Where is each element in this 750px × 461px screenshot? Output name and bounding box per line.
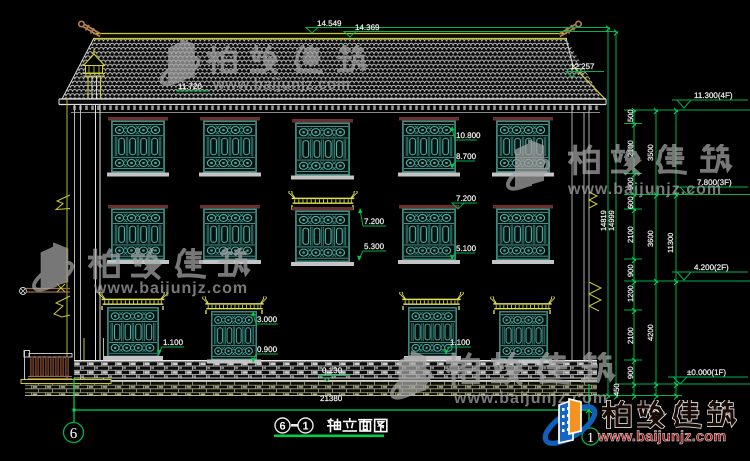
svg-text:0.900: 0.900 <box>257 345 278 354</box>
svg-text:3.000: 3.000 <box>257 315 278 324</box>
svg-text:4200: 4200 <box>646 324 655 341</box>
svg-text:600: 600 <box>626 196 635 209</box>
svg-text:1: 1 <box>587 431 594 446</box>
svg-text:450: 450 <box>612 383 621 396</box>
svg-text:4.200(2F): 4.200(2F) <box>694 263 729 272</box>
svg-text:±0.000(1F): ±0.000(1F) <box>687 368 726 377</box>
svg-text:www.baijunjz.com: www.baijunjz.com <box>212 76 350 93</box>
svg-text:1: 1 <box>302 421 308 433</box>
svg-text:11300: 11300 <box>666 233 675 253</box>
svg-text:7.200: 7.200 <box>364 217 385 226</box>
svg-text:8.700: 8.700 <box>456 152 477 161</box>
svg-text:6: 6 <box>70 426 78 442</box>
svg-text:12.257: 12.257 <box>570 62 595 71</box>
svg-text:www.baijunjz.com: www.baijunjz.com <box>567 181 722 198</box>
svg-text:900: 900 <box>626 366 635 379</box>
svg-text:14999: 14999 <box>607 210 616 231</box>
svg-text:6: 6 <box>279 421 285 433</box>
svg-text:3500: 3500 <box>646 144 655 161</box>
svg-text:www.baijunjz.com: www.baijunjz.com <box>93 280 248 297</box>
svg-text:11.720: 11.720 <box>178 82 202 91</box>
svg-text:5.300: 5.300 <box>364 242 385 251</box>
svg-text:1.100: 1.100 <box>450 338 471 347</box>
svg-text:11.300(4F): 11.300(4F) <box>694 91 733 100</box>
svg-text:500: 500 <box>626 109 635 122</box>
svg-text:5.100: 5.100 <box>456 244 477 253</box>
svg-text:www.baijunjz.com: www.baijunjz.com <box>597 429 726 445</box>
svg-text:10.800: 10.800 <box>456 131 481 140</box>
svg-text:7.200: 7.200 <box>456 194 477 203</box>
svg-text:3600: 3600 <box>646 230 655 247</box>
svg-text:21380: 21380 <box>320 394 343 403</box>
svg-text:14.369: 14.369 <box>355 23 380 32</box>
svg-text:900: 900 <box>626 264 635 277</box>
svg-text:2100: 2100 <box>626 327 635 344</box>
svg-text:0.130: 0.130 <box>322 366 343 375</box>
svg-text:2100: 2100 <box>626 226 635 243</box>
svg-text:14.549: 14.549 <box>317 19 342 28</box>
svg-text:1.100: 1.100 <box>163 338 184 347</box>
svg-text:1200: 1200 <box>626 285 635 302</box>
